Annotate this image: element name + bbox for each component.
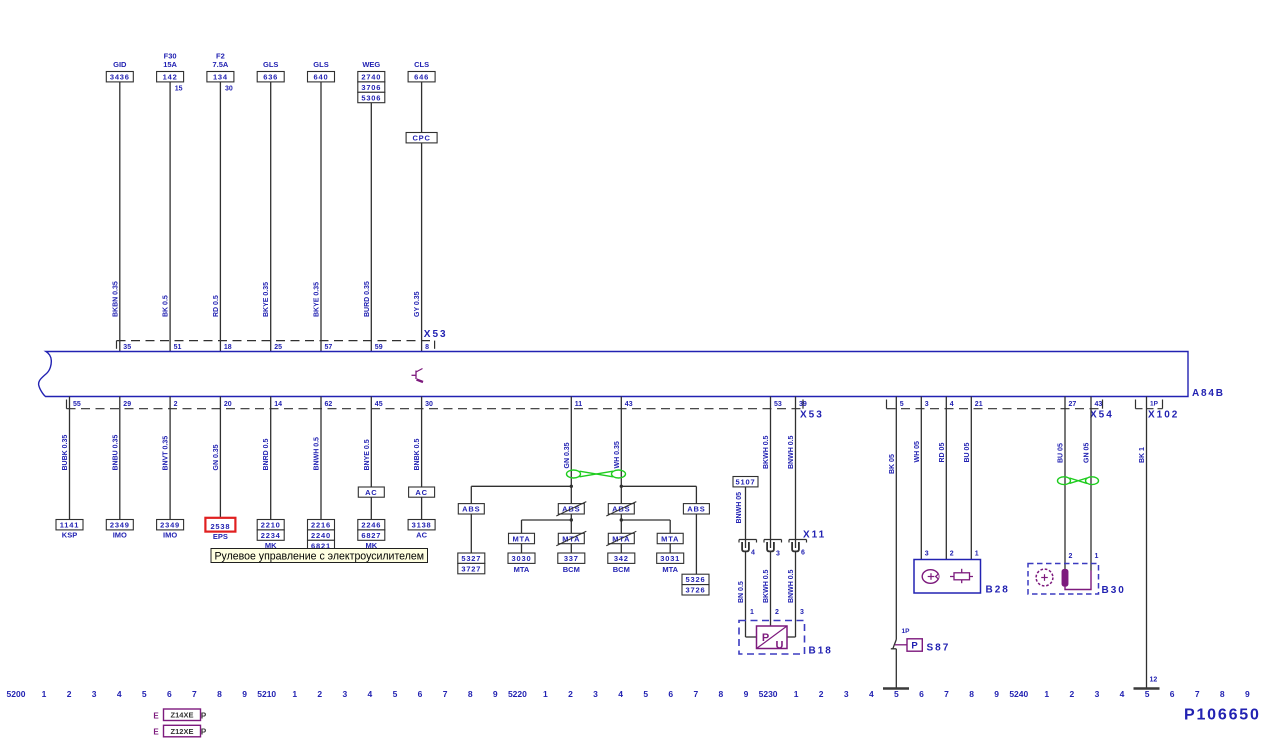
svg-text:GLS: GLS (263, 60, 278, 69)
svg-text:BCM: BCM (563, 565, 580, 574)
svg-text:43: 43 (625, 401, 633, 408)
svg-text:8: 8 (217, 689, 222, 699)
svg-text:ABS: ABS (462, 505, 480, 514)
svg-text:53: 53 (774, 401, 782, 408)
svg-text:MTA: MTA (514, 565, 530, 574)
svg-text:B28: B28 (986, 585, 1010, 596)
svg-text:9: 9 (242, 689, 247, 699)
svg-text:43: 43 (1095, 401, 1103, 408)
svg-text:5: 5 (894, 689, 899, 699)
svg-text:57: 57 (325, 344, 333, 351)
svg-text:IMO: IMO (163, 531, 177, 540)
svg-text:BUBK 0.35: BUBK 0.35 (62, 435, 69, 471)
svg-text:8: 8 (969, 689, 974, 699)
svg-text:3030: 3030 (512, 554, 532, 563)
svg-text:5: 5 (1145, 689, 1150, 699)
svg-text:AC: AC (365, 488, 377, 497)
svg-text:BNVT 0.35: BNVT 0.35 (163, 436, 170, 471)
svg-text:2216: 2216 (311, 521, 331, 530)
svg-text:5: 5 (900, 401, 904, 408)
svg-text:55: 55 (73, 401, 81, 408)
svg-text:1: 1 (292, 689, 297, 699)
svg-text:AC: AC (415, 488, 427, 497)
svg-text:7: 7 (192, 689, 197, 699)
svg-text:5: 5 (393, 689, 398, 699)
svg-text:BNBU 0.35: BNBU 0.35 (112, 435, 119, 471)
svg-text:1: 1 (794, 689, 799, 699)
svg-text:BNWH 0.5: BNWH 0.5 (314, 437, 321, 471)
svg-text:636: 636 (263, 73, 278, 82)
svg-text:8: 8 (468, 689, 473, 699)
svg-text:7: 7 (944, 689, 949, 699)
svg-text:BU 05: BU 05 (964, 443, 971, 463)
svg-text:5: 5 (643, 689, 648, 699)
svg-text:8: 8 (1220, 689, 1225, 699)
svg-text:15: 15 (175, 86, 183, 93)
svg-text:30: 30 (225, 86, 233, 93)
svg-text:4: 4 (117, 689, 122, 699)
svg-text:2: 2 (819, 689, 824, 699)
svg-text:62: 62 (325, 401, 333, 408)
svg-text:6: 6 (919, 689, 924, 699)
svg-text:B18: B18 (809, 646, 833, 657)
svg-text:1: 1 (1044, 689, 1049, 699)
svg-text:27: 27 (1069, 401, 1077, 408)
svg-text:BKWH 0.5: BKWH 0.5 (763, 435, 770, 469)
svg-text:3436: 3436 (110, 73, 130, 82)
svg-text:BU 05: BU 05 (1058, 443, 1065, 463)
svg-text:1: 1 (543, 689, 548, 699)
svg-text:640: 640 (314, 73, 329, 82)
svg-text:EPS: EPS (213, 532, 228, 541)
svg-text:MTA: MTA (661, 534, 679, 543)
svg-text:8: 8 (425, 344, 429, 351)
svg-text:4: 4 (751, 550, 755, 557)
svg-text:CLS: CLS (414, 60, 429, 69)
svg-text:45: 45 (375, 401, 383, 408)
svg-text:51: 51 (174, 344, 182, 351)
svg-text:3: 3 (342, 689, 347, 699)
svg-text:GN 0.35: GN 0.35 (564, 442, 571, 468)
svg-text:4: 4 (869, 689, 874, 699)
svg-text:3: 3 (925, 551, 929, 558)
svg-text:4: 4 (618, 689, 623, 699)
svg-text:WH 05: WH 05 (914, 441, 921, 463)
svg-text:5200: 5200 (7, 689, 26, 699)
svg-text:P: P (762, 632, 769, 644)
svg-text:1: 1 (1095, 553, 1099, 560)
svg-text:Рулевое управление с электроус: Рулевое управление с электроусилителем (215, 550, 425, 562)
svg-text:29: 29 (123, 401, 131, 408)
svg-text:BK 1: BK 1 (1139, 447, 1146, 463)
svg-text:9: 9 (744, 689, 749, 699)
svg-text:8: 8 (719, 689, 724, 699)
svg-text:12: 12 (1150, 677, 1158, 684)
svg-text:X54: X54 (1090, 410, 1114, 421)
svg-text:AC: AC (416, 531, 427, 540)
svg-text:5240: 5240 (1009, 689, 1028, 699)
svg-text:3: 3 (844, 689, 849, 699)
svg-text:3726: 3726 (686, 586, 706, 595)
svg-text:BKWH 0.5: BKWH 0.5 (763, 569, 770, 603)
svg-text:7.5A: 7.5A (212, 60, 228, 69)
svg-text:X102: X102 (1148, 410, 1179, 421)
svg-text:GY 0.35: GY 0.35 (414, 291, 421, 317)
svg-text:GN 05: GN 05 (1084, 443, 1091, 463)
svg-text:1: 1 (750, 609, 754, 616)
svg-text:X53: X53 (800, 410, 824, 421)
svg-text:5327: 5327 (461, 554, 481, 563)
svg-text:GN 0.35: GN 0.35 (213, 444, 220, 470)
svg-text:134: 134 (213, 73, 228, 82)
svg-text:RD 0.5: RD 0.5 (213, 295, 220, 317)
svg-text:X53: X53 (424, 329, 448, 340)
svg-text:BNWH 05: BNWH 05 (736, 492, 743, 524)
svg-text:P106650: P106650 (1184, 707, 1261, 724)
svg-text:3: 3 (92, 689, 97, 699)
svg-text:6: 6 (801, 550, 805, 557)
svg-text:BK 05: BK 05 (889, 454, 896, 474)
svg-text:30: 30 (425, 401, 433, 408)
svg-text:B30: B30 (1102, 585, 1126, 596)
svg-text:2: 2 (775, 609, 779, 616)
svg-text:BNRD 0.5: BNRD 0.5 (263, 438, 270, 470)
svg-text:5230: 5230 (759, 689, 778, 699)
svg-text:3727: 3727 (461, 564, 481, 573)
svg-text:1P: 1P (902, 628, 911, 635)
svg-text:20: 20 (224, 401, 232, 408)
svg-text:2: 2 (1070, 689, 1075, 699)
svg-text:25: 25 (274, 344, 282, 351)
svg-text:35: 35 (123, 344, 131, 351)
svg-text:BCM: BCM (613, 565, 630, 574)
svg-text:2740: 2740 (361, 73, 381, 82)
svg-text:337: 337 (564, 554, 579, 563)
svg-text:KSP: KSP (62, 531, 77, 540)
svg-text:BKYE 0.35: BKYE 0.35 (314, 282, 321, 317)
svg-text:X11: X11 (803, 530, 826, 541)
svg-text:14: 14 (274, 401, 282, 408)
svg-text:GID: GID (113, 60, 127, 69)
svg-text:BKBN 0.35: BKBN 0.35 (112, 281, 119, 317)
svg-text:2349: 2349 (110, 521, 130, 530)
svg-text:15A: 15A (163, 60, 177, 69)
svg-text:3: 3 (800, 609, 804, 616)
svg-text:2246: 2246 (361, 521, 381, 530)
svg-text:18: 18 (224, 344, 232, 351)
svg-text:2538: 2538 (210, 522, 230, 531)
svg-text:2: 2 (568, 689, 573, 699)
svg-text:3: 3 (593, 689, 598, 699)
svg-text:MTA: MTA (512, 534, 530, 543)
svg-text:WEG: WEG (362, 60, 380, 69)
svg-text:GLS: GLS (313, 60, 328, 69)
svg-text:S87: S87 (927, 643, 951, 654)
svg-text:5107: 5107 (736, 478, 756, 487)
svg-text:646: 646 (414, 73, 429, 82)
svg-text:2: 2 (317, 689, 322, 699)
svg-text:342: 342 (614, 554, 629, 563)
svg-text:CPC: CPC (412, 134, 430, 143)
svg-text:11: 11 (575, 401, 583, 408)
svg-text:2: 2 (174, 401, 178, 408)
svg-text:6: 6 (167, 689, 172, 699)
svg-text:BNYE 0.5: BNYE 0.5 (364, 439, 371, 470)
svg-text:Z12XE: Z12XE (171, 727, 194, 736)
svg-text:4: 4 (1120, 689, 1125, 699)
svg-text:U: U (776, 640, 784, 652)
svg-text:5210: 5210 (257, 689, 276, 699)
svg-text:6827: 6827 (361, 531, 381, 540)
svg-text:WH 0.35: WH 0.35 (614, 441, 621, 468)
svg-text:3: 3 (776, 551, 780, 558)
svg-text:A84B: A84B (1192, 388, 1225, 399)
svg-text:1141: 1141 (60, 521, 79, 530)
svg-text:5326: 5326 (686, 575, 706, 584)
svg-text:3138: 3138 (412, 521, 432, 530)
svg-text:6: 6 (418, 689, 423, 699)
svg-text:BKYE 0.35: BKYE 0.35 (263, 282, 270, 317)
svg-text:BURD 0.35: BURD 0.35 (364, 281, 371, 317)
svg-text:E: E (153, 728, 159, 737)
svg-text:P: P (201, 711, 207, 720)
svg-text:3031: 3031 (660, 554, 680, 563)
svg-text:7: 7 (693, 689, 698, 699)
svg-text:2349: 2349 (160, 521, 180, 530)
svg-text:39: 39 (799, 401, 807, 408)
svg-text:6: 6 (1170, 689, 1175, 699)
svg-text:3: 3 (925, 401, 929, 408)
svg-text:5306: 5306 (361, 93, 381, 102)
svg-text:1: 1 (42, 689, 47, 699)
svg-text:5: 5 (142, 689, 147, 699)
svg-text:59: 59 (375, 344, 383, 351)
svg-text:9: 9 (1245, 689, 1250, 699)
svg-text:BNWH 0.5: BNWH 0.5 (788, 569, 795, 603)
svg-text:2240: 2240 (311, 531, 331, 540)
svg-text:21: 21 (975, 401, 983, 408)
svg-text:2210: 2210 (261, 521, 281, 530)
svg-text:ABS: ABS (687, 505, 705, 514)
svg-text:BN 0.5: BN 0.5 (738, 581, 745, 603)
svg-text:3: 3 (1095, 689, 1100, 699)
svg-text:142: 142 (163, 73, 178, 82)
svg-text:1: 1 (975, 551, 979, 558)
svg-text:P: P (911, 640, 918, 651)
svg-text:2: 2 (950, 551, 954, 558)
svg-text:2: 2 (1069, 553, 1073, 560)
svg-text:1P: 1P (1150, 401, 1159, 408)
svg-text:7: 7 (1195, 689, 1200, 699)
svg-text:RD 05: RD 05 (939, 443, 946, 463)
svg-text:9: 9 (994, 689, 999, 699)
svg-text:7: 7 (443, 689, 448, 699)
svg-text:E: E (153, 711, 159, 720)
svg-text:6: 6 (668, 689, 673, 699)
svg-text:2: 2 (67, 689, 72, 699)
svg-text:3706: 3706 (361, 83, 381, 92)
svg-text:4: 4 (950, 401, 954, 408)
svg-text:2234: 2234 (261, 531, 281, 540)
svg-text:BNBK 0.5: BNBK 0.5 (414, 438, 421, 470)
svg-text:5220: 5220 (508, 689, 527, 699)
svg-text:BNWH 0.5: BNWH 0.5 (788, 435, 795, 469)
svg-text:P: P (201, 728, 207, 737)
svg-text:4: 4 (368, 689, 373, 699)
svg-text:IMO: IMO (113, 531, 127, 540)
svg-text:Z14XE: Z14XE (171, 711, 194, 720)
svg-text:BK 0.5: BK 0.5 (163, 295, 170, 317)
svg-text:9: 9 (493, 689, 498, 699)
svg-text:MTA: MTA (662, 565, 678, 574)
